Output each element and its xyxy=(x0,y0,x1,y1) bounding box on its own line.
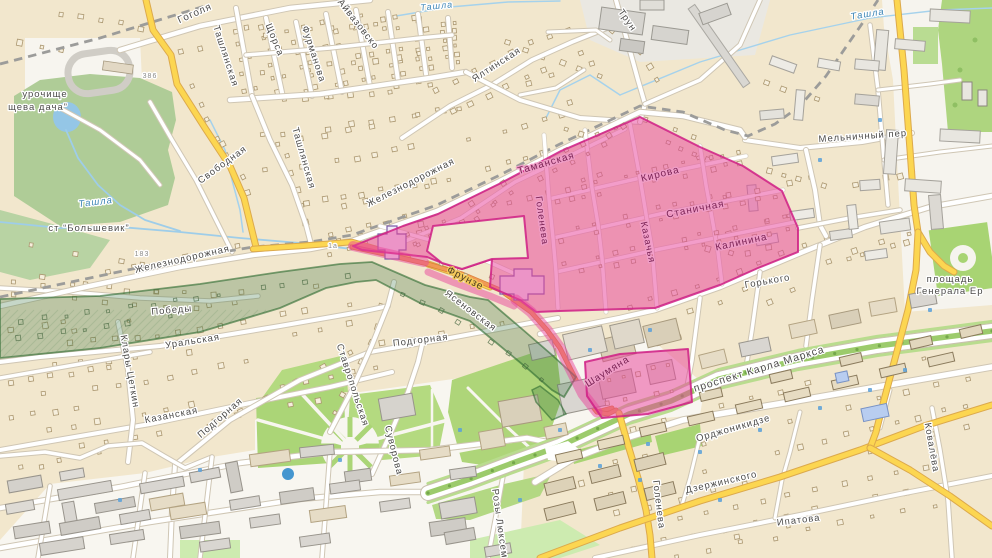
svg-text:1а: 1а xyxy=(328,243,338,250)
svg-text:площадь: площадь xyxy=(927,274,974,285)
svg-text:386: 386 xyxy=(143,73,158,80)
svg-text:урочище: урочище xyxy=(22,89,67,100)
svg-text:Генерала Ер: Генерала Ер xyxy=(917,286,984,297)
svg-text:щева дача”: щева дача” xyxy=(8,102,68,113)
svg-text:ст “Большевик”: ст “Большевик” xyxy=(48,223,129,234)
svg-text:183: 183 xyxy=(135,251,150,258)
